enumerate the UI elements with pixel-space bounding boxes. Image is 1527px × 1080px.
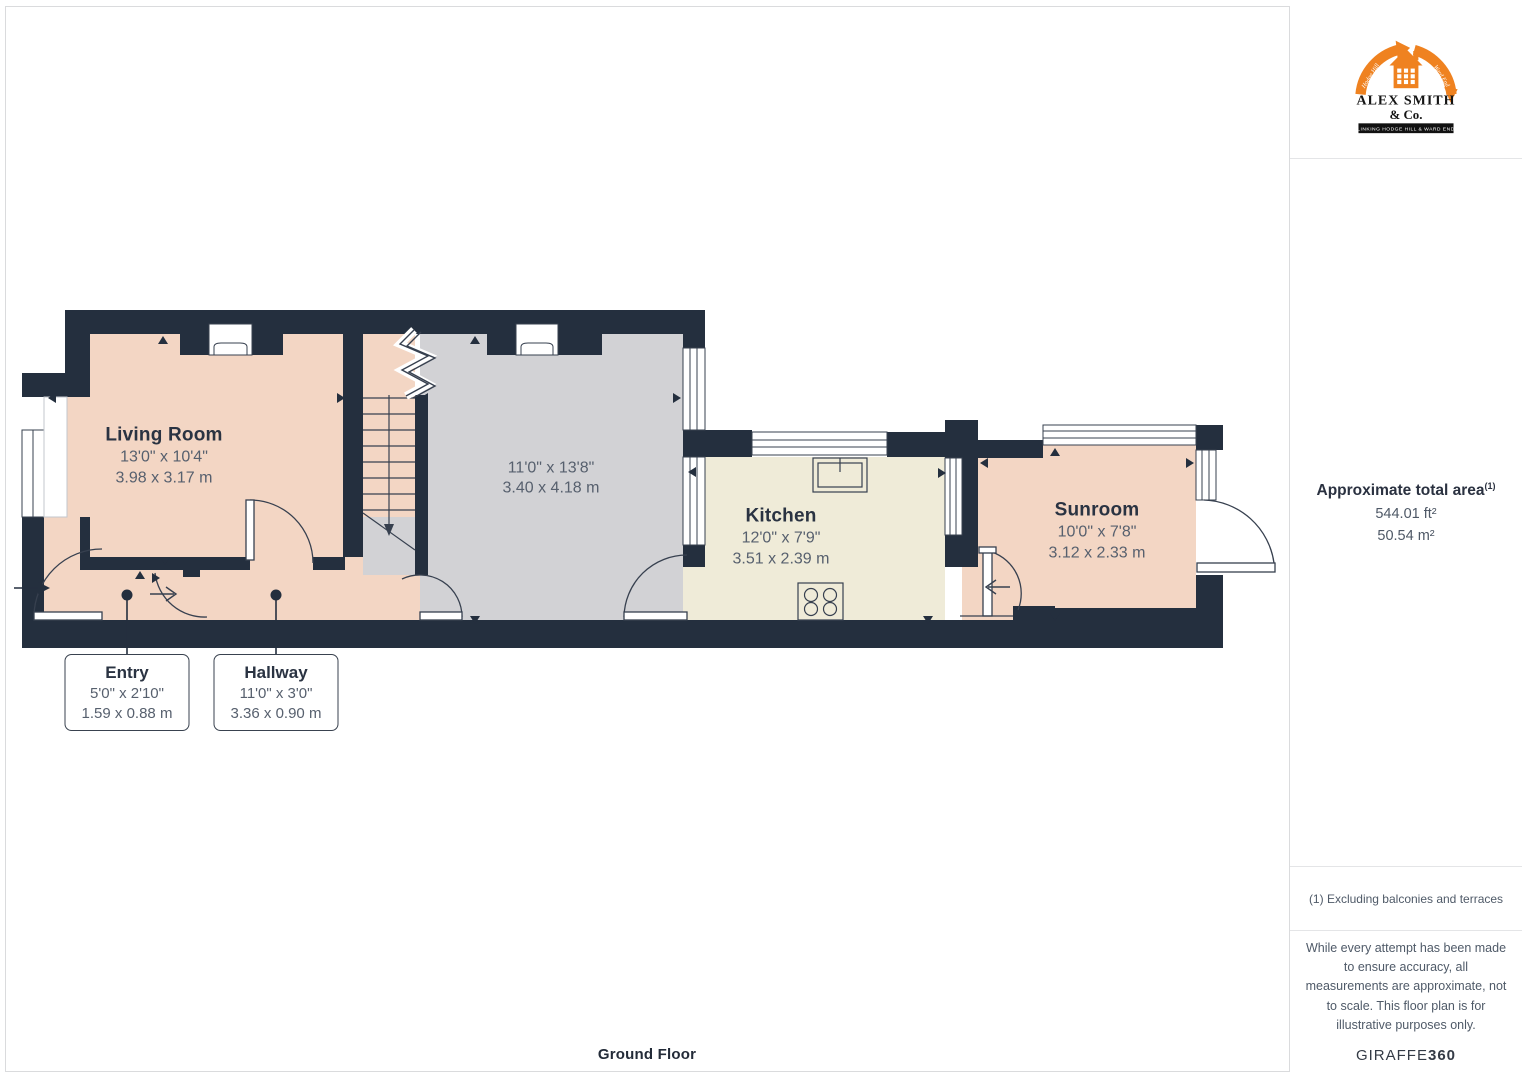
disclaimer-text: While every attempt has been made to ens… — [1302, 939, 1510, 1036]
room-name: Sunroom — [1049, 498, 1146, 522]
floor-name-label: Ground Floor — [598, 1046, 696, 1063]
room-label-sunroom: Sunroom 10'0" x 7'8" 3.12 x 2.33 m — [1049, 498, 1146, 563]
total-area-title: Approximate total area(1) — [1317, 481, 1496, 500]
total-area-metric: 50.54 m² — [1377, 528, 1434, 544]
total-area-panel: Approximate total area(1) 544.01 ft² 50.… — [1290, 159, 1522, 866]
room-dim-metric: 3.40 x 4.18 m — [503, 479, 600, 499]
callout-name: Entry — [75, 662, 180, 684]
callout-dim-imperial: 11'0" x 3'0" — [224, 684, 329, 704]
room-dim-imperial: 11'0" x 13'8" — [503, 459, 600, 479]
callout-dim-imperial: 5'0" x 2'10" — [75, 684, 180, 704]
callout-dim-metric: 1.59 x 0.88 m — [75, 704, 180, 724]
footnote-marker: (1) — [1484, 481, 1495, 491]
alex-smith-logo-icon: Hodge Hill Ward End ALEX SMITH & Co. LIN… — [1344, 30, 1468, 134]
room-dim-metric: 3.98 x 3.17 m — [105, 468, 222, 488]
room-dim-imperial: 10'0" x 7'8" — [1049, 523, 1146, 543]
footnote-text: (1) Excluding balconies and terraces — [1309, 892, 1503, 906]
total-area-imperial: 544.01 ft² — [1375, 506, 1436, 522]
room-dim-metric: 3.12 x 2.33 m — [1049, 543, 1146, 563]
house-windows — [1397, 69, 1415, 85]
callout-entry: Entry 5'0" x 2'10" 1.59 x 0.88 m — [65, 654, 190, 731]
room-label-kitchen: Kitchen 12'0" x 7'9" 3.51 x 2.39 m — [733, 504, 830, 569]
callout-dim-metric: 3.36 x 0.90 m — [224, 704, 329, 724]
room-dim-imperial: 12'0" x 7'9" — [733, 529, 830, 549]
room-dim-metric: 3.51 x 2.39 m — [733, 549, 830, 569]
callout-hallway: Hallway 11'0" x 3'0" 3.36 x 0.90 m — [214, 654, 339, 731]
agency-logo: Hodge Hill Ward End ALEX SMITH & Co. LIN… — [1290, 6, 1522, 159]
logo-suffix-text: & Co. — [1390, 107, 1423, 122]
room-label-unnamed-room: 11'0" x 13'8" 3.40 x 4.18 m — [503, 459, 600, 500]
disclaimer-panel: While every attempt has been made to ens… — [1290, 930, 1522, 1072]
info-sidebar: Hodge Hill Ward End ALEX SMITH & Co. LIN… — [1289, 6, 1522, 1072]
room-name: Living Room — [105, 423, 222, 447]
room-dim-imperial: 13'0" x 10'4" — [105, 448, 222, 468]
room-name: Kitchen — [733, 504, 830, 528]
brand-suffix: 360 — [1428, 1047, 1456, 1064]
giraffe360-brand: GIRAFFE360 — [1356, 1047, 1456, 1064]
logo-tagline-text: LINKING HODGE HILL & WARD END — [1357, 127, 1454, 133]
callout-name: Hallway — [224, 662, 329, 684]
total-area-label: Approximate total area — [1317, 482, 1485, 499]
footnote: (1) Excluding balconies and terraces — [1290, 866, 1522, 930]
brand-name: GIRAFFE — [1356, 1047, 1428, 1064]
room-label-living-room: Living Room 13'0" x 10'4" 3.98 x 3.17 m — [105, 423, 222, 488]
